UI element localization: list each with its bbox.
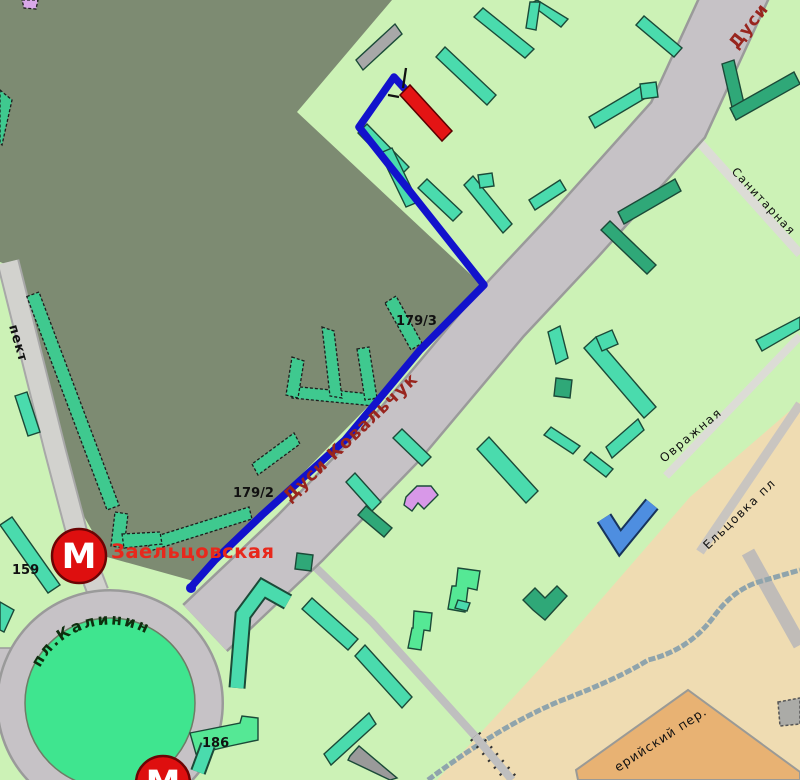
building xyxy=(640,82,658,99)
map-canvas[interactable]: 179/3 179/2 159 186 Дуси Ковальчук Дуси … xyxy=(0,0,800,780)
house-number-179-2: 179/2 xyxy=(233,486,274,501)
station-label-zaeltsovskaya: Заельцовская xyxy=(111,540,275,563)
building-gray-tan xyxy=(778,698,800,726)
metro-letter: М xyxy=(62,537,97,577)
building-dark-square xyxy=(554,378,572,398)
route-end-point xyxy=(186,583,196,593)
house-number-186: 186 xyxy=(202,736,229,751)
building xyxy=(295,553,313,571)
building-purple-top xyxy=(22,0,38,9)
metro-icon-zaeltsovskaya: М xyxy=(52,529,106,583)
building xyxy=(478,173,494,188)
house-number-159: 159 xyxy=(12,563,39,578)
house-number-179-3: 179/3 xyxy=(396,314,437,329)
metro-letter: М xyxy=(146,764,181,780)
